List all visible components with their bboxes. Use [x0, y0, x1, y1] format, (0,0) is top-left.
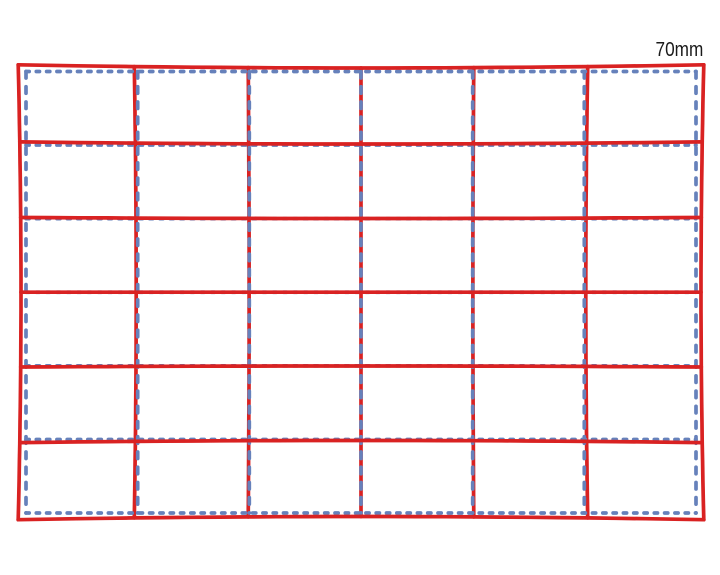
svg-text:70mm: 70mm [656, 39, 704, 61]
